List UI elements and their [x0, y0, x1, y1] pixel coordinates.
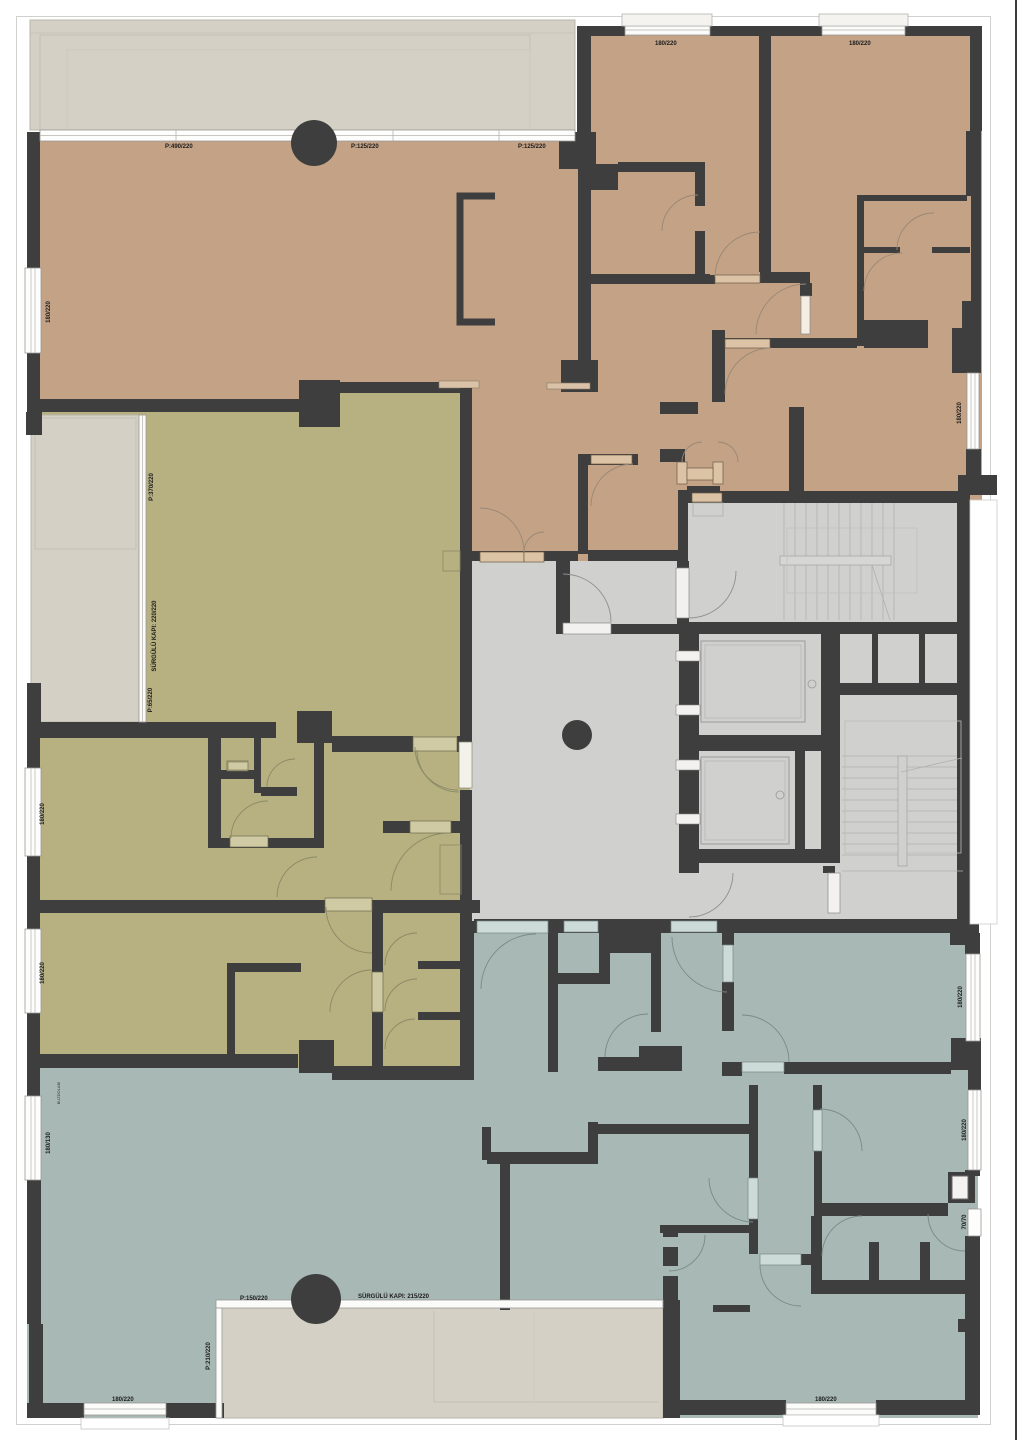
svg-text:180/220: 180/220	[815, 1397, 837, 1403]
svg-text:180/220: 180/220	[849, 41, 871, 47]
svg-text:P:210/220: P:210/220	[206, 1342, 212, 1370]
svg-text:180/220: 180/220	[958, 986, 964, 1008]
svg-text:P:125/220: P:125/220	[518, 144, 546, 150]
svg-text:180/220: 180/220	[40, 962, 46, 984]
svg-text:BUZDOLABI: BUZDOLABI	[56, 1082, 61, 1105]
svg-text:70/70: 70/70	[962, 1214, 968, 1230]
svg-text:180/220: 180/220	[655, 41, 677, 47]
svg-text:180/220: 180/220	[957, 402, 963, 424]
svg-text:180/220: 180/220	[46, 301, 52, 323]
svg-text:180/220: 180/220	[962, 1119, 968, 1141]
svg-text:180/220: 180/220	[40, 803, 46, 825]
svg-text:P:370/220: P:370/220	[149, 473, 155, 501]
svg-text:SÜRGÜLÜ KAPI: 215/220: SÜRGÜLÜ KAPI: 215/220	[358, 1293, 430, 1300]
svg-text:180/220: 180/220	[112, 1397, 134, 1403]
svg-text:P:65/220: P:65/220	[148, 687, 154, 712]
svg-text:P:150/220: P:150/220	[240, 1296, 268, 1302]
svg-text:P:490/220: P:490/220	[165, 144, 193, 150]
svg-text:P:125/220: P:125/220	[351, 144, 379, 150]
svg-text:SÜRGÜLÜ KAPI: 220/220: SÜRGÜLÜ KAPI: 220/220	[151, 600, 158, 672]
svg-text:180/130: 180/130	[46, 1132, 52, 1154]
